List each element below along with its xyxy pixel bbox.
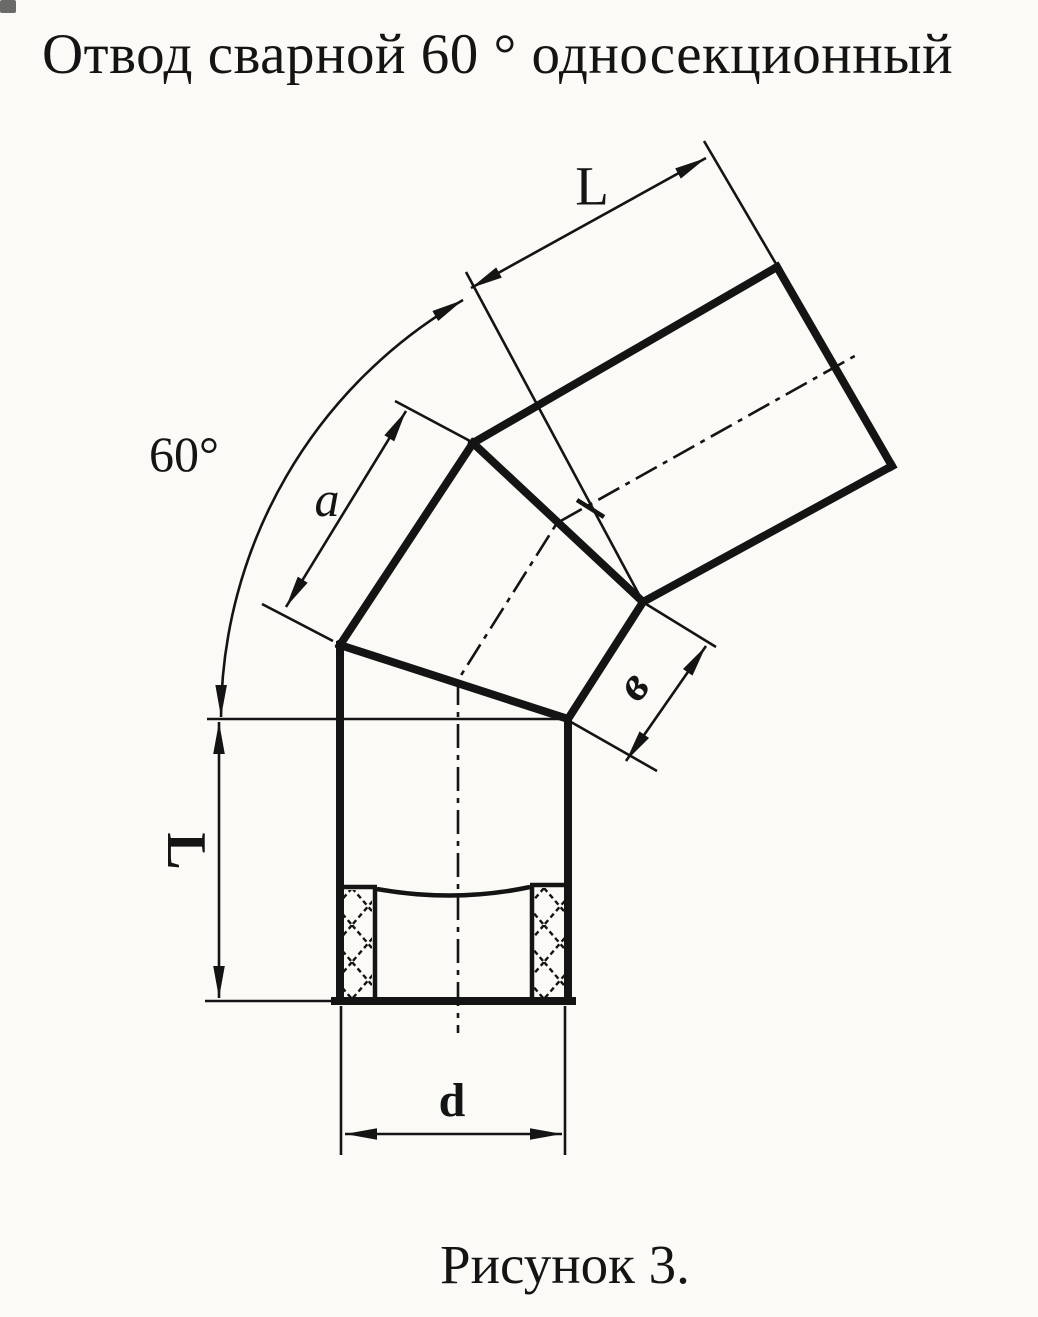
ext-line-v-upper <box>646 604 716 647</box>
lower-weld-seam <box>340 645 568 719</box>
dim-label-L-side: L <box>158 832 214 869</box>
left-wall-hatch <box>342 890 372 998</box>
upper-weld-seam <box>473 443 643 602</box>
ext-line-a-lower <box>262 604 333 641</box>
elbow-technical-drawing <box>0 0 1038 1317</box>
right-wall-hatch <box>534 888 565 998</box>
ext-line-L-top-right <box>704 141 779 269</box>
inserted-pipe-break-line <box>377 887 530 896</box>
dim-label-L-top: L <box>575 159 609 214</box>
middle-segment-left-edge <box>340 443 473 645</box>
pipe-outline <box>335 267 892 1001</box>
top-pipe-upper-edge <box>473 267 777 443</box>
dimension-L-top <box>466 141 779 602</box>
ext-line-a-upper <box>395 401 470 441</box>
angle-value-label: 60° <box>149 429 219 479</box>
dim-label-a: a <box>315 474 340 524</box>
ext-line-v-lower <box>571 722 657 771</box>
top-pipe-lower-edge <box>643 466 892 602</box>
socket-section-detail <box>339 885 569 1000</box>
figure-caption: Рисунок 3. <box>440 1237 690 1292</box>
ext-line-L-top-left <box>466 272 643 602</box>
dim-label-d: d <box>439 1077 466 1125</box>
middle-segment-right-edge <box>568 602 643 719</box>
scanned-drawing-page: Отвод сварной 60 ° односекционный <box>0 0 1038 1317</box>
dimension-L-side <box>205 719 567 1001</box>
